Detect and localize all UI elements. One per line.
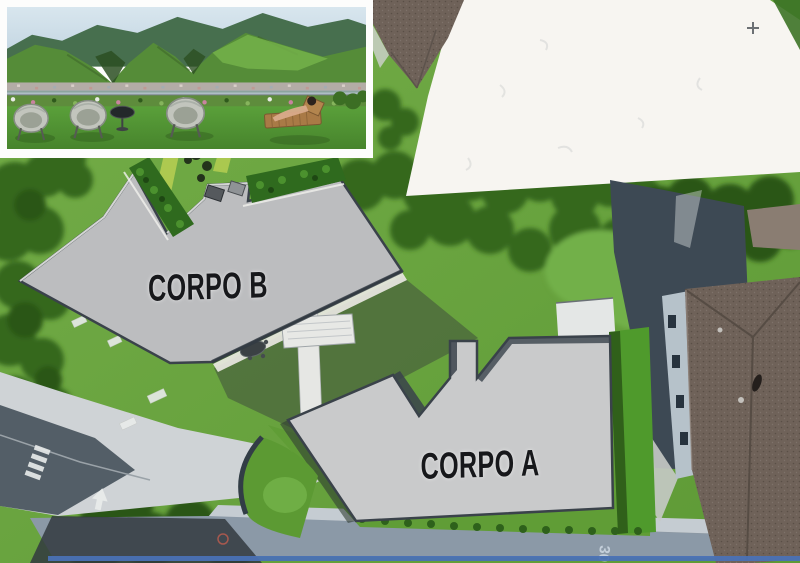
corpo-a-label: CORPO A [412,444,548,485]
bottom-edge-line [48,556,800,561]
small-roof [747,204,800,250]
terrace-photo-inset [0,0,373,158]
site-plan-image: 30 [0,0,800,563]
lake-sliver [7,90,366,94]
corpo-b-label: CORPO B [140,266,276,307]
village-strip [7,82,366,91]
terrace-photo [7,7,366,149]
tree-shadow-on-road [30,516,262,563]
white-overlay-area [406,0,800,196]
